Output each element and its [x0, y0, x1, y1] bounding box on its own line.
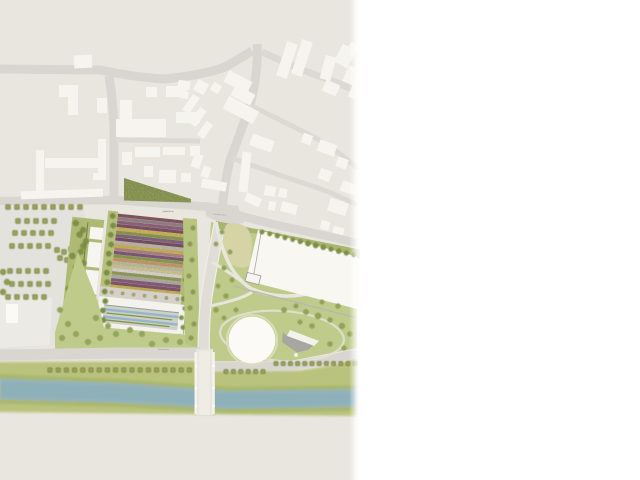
- svg-text:Friesendamm: Friesendamm: [158, 349, 170, 351]
- svg-text:Langewerther Str.: Langewerther Str.: [162, 210, 174, 213]
